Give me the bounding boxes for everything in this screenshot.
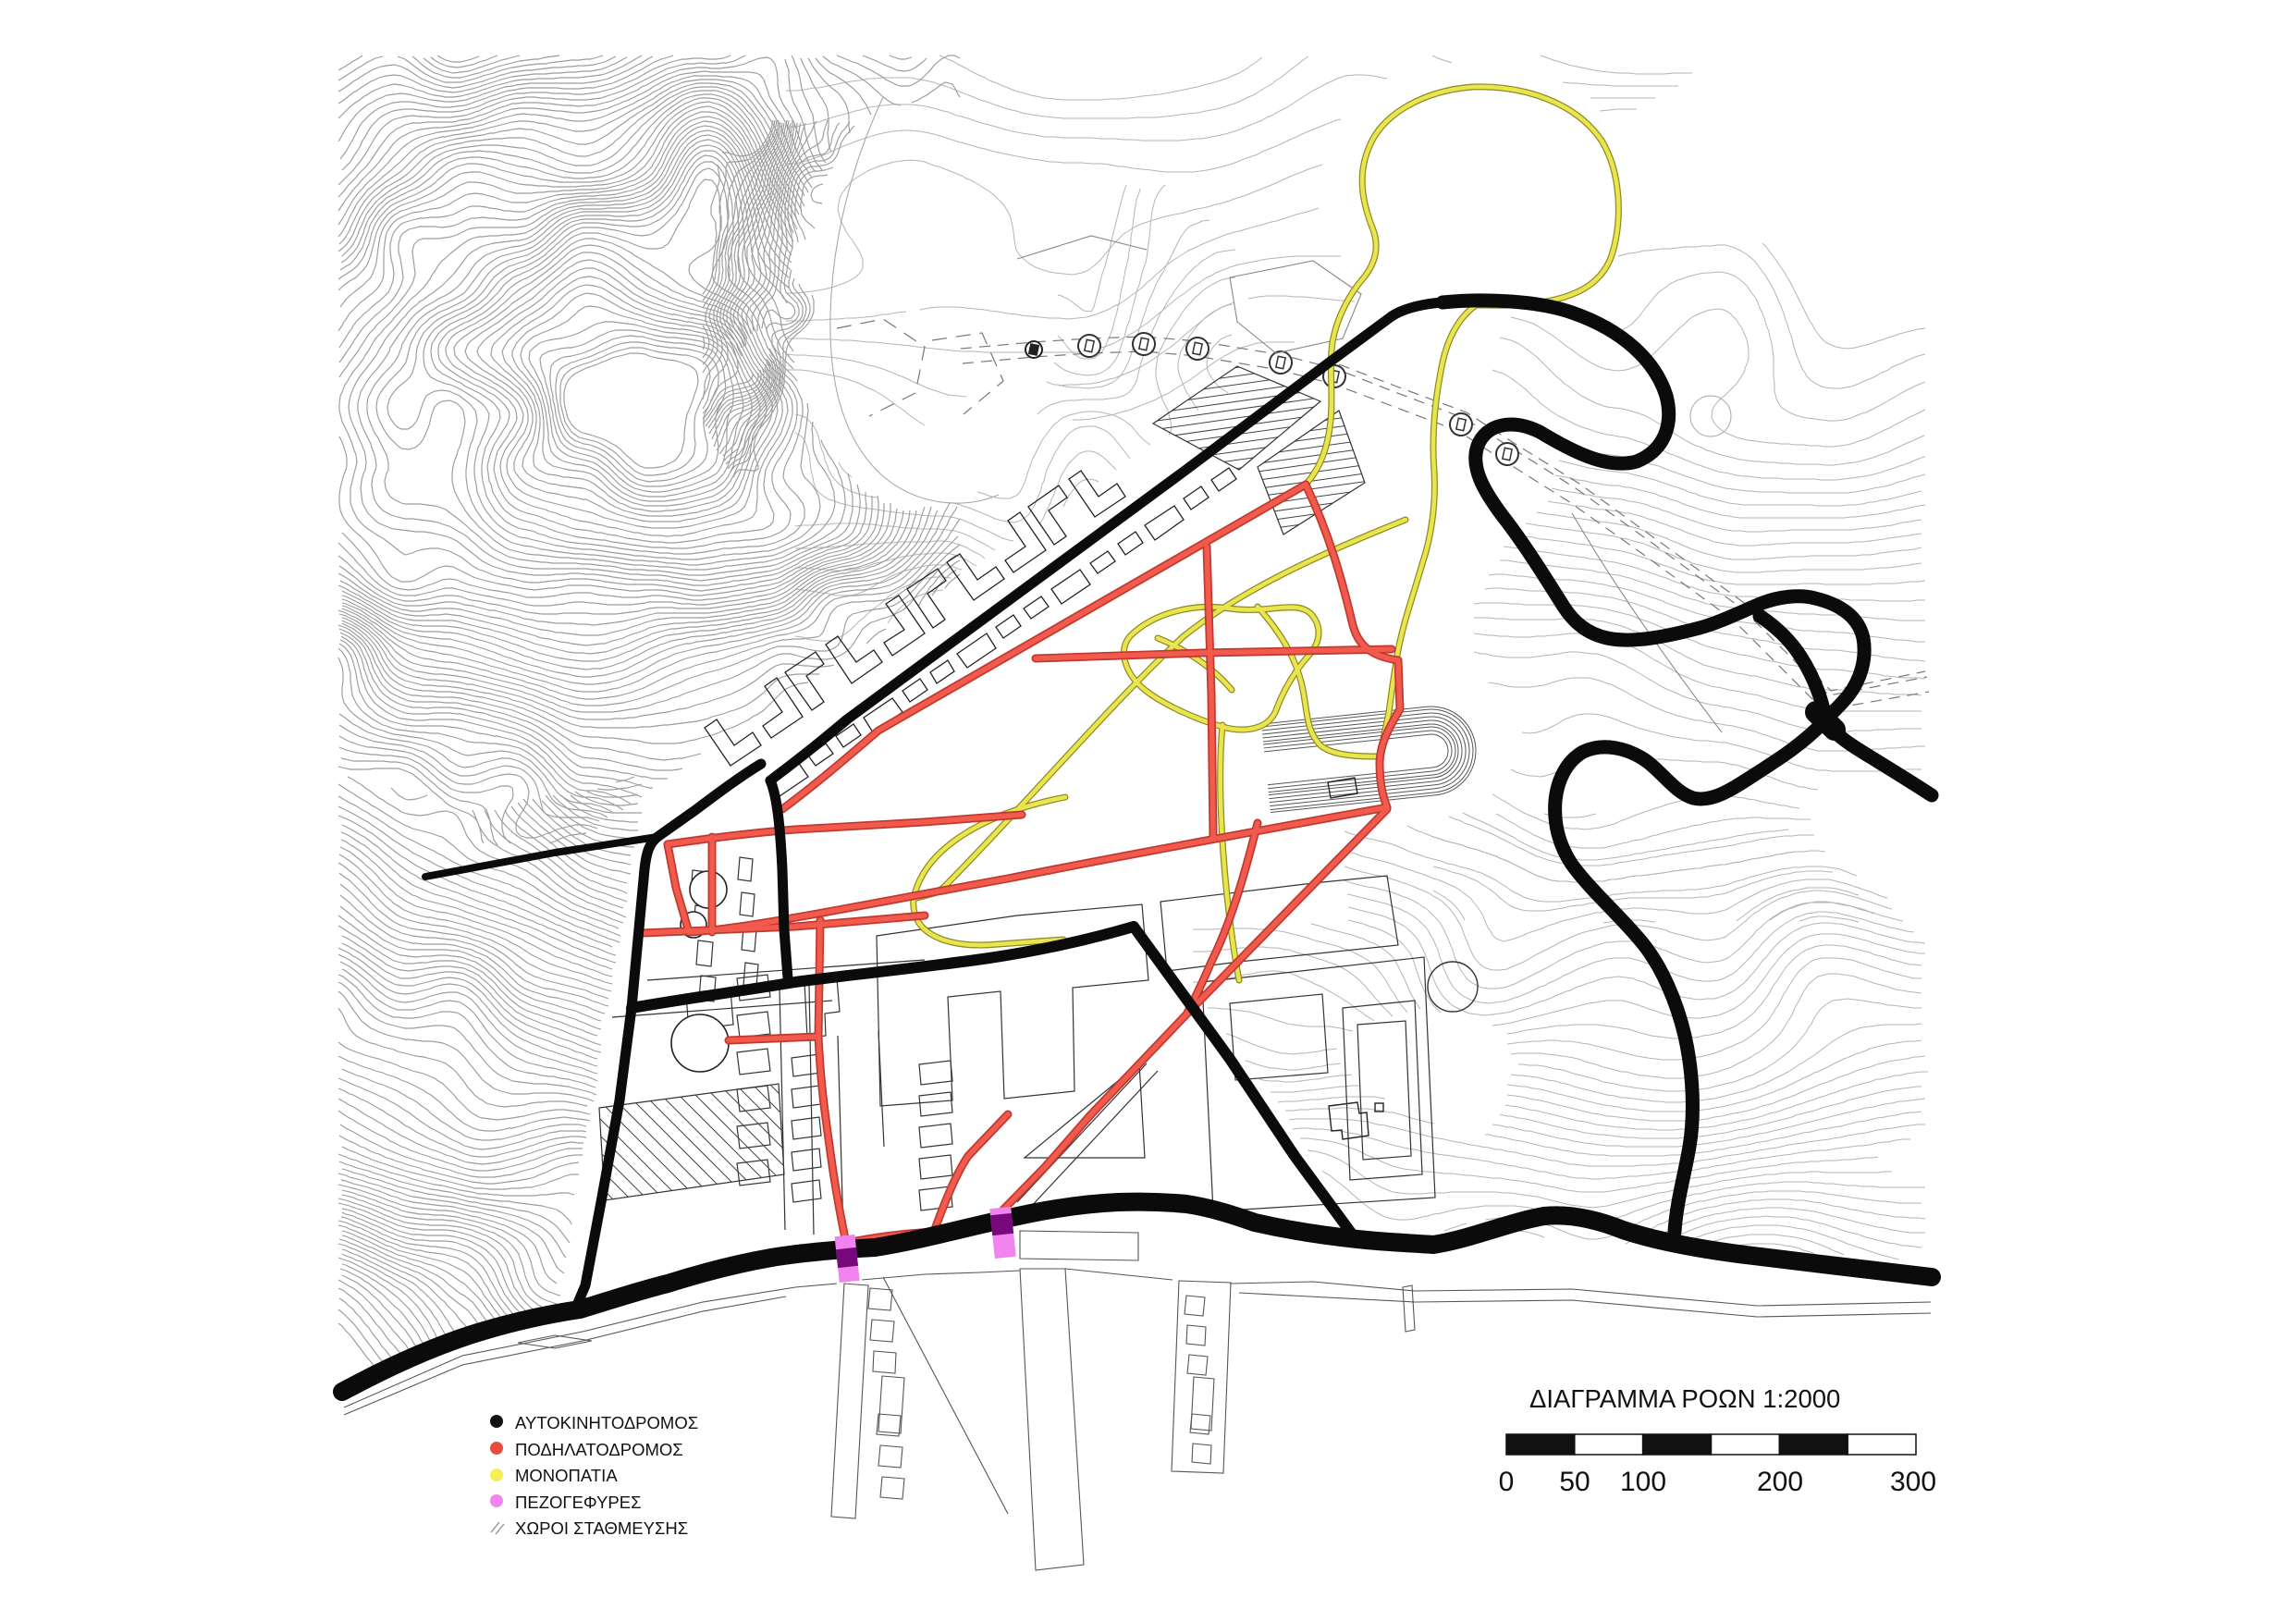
svg-text:200: 200 <box>1757 1467 1803 1497</box>
svg-text:100: 100 <box>1620 1467 1666 1497</box>
svg-text:ΠΟΔΗΛΑΤΟΔΡΟΜΟΣ: ΠΟΔΗΛΑΤΟΔΡΟΜΟΣ <box>515 1440 683 1459</box>
svg-text:ΧΩΡΟΙ ΣΤΑΘΜΕΥΣΗΣ: ΧΩΡΟΙ ΣΤΑΘΜΕΥΣΗΣ <box>515 1518 688 1538</box>
svg-text:300: 300 <box>1890 1467 1936 1497</box>
svg-text:ΠΕΖΟΓΕΦΥΡΕΣ: ΠΕΖΟΓΕΦΥΡΕΣ <box>515 1493 642 1512</box>
svg-text:ΔΙΑΓΡΑΜΜΑ ΡΟΩΝ 1:2000: ΔΙΑΓΡΑΜΜΑ ΡΟΩΝ 1:2000 <box>1529 1384 1840 1413</box>
svg-text:ΑΥΤΟΚΙΝΗΤΟΔΡΟΜΟΣ: ΑΥΤΟΚΙΝΗΤΟΔΡΟΜΟΣ <box>515 1413 698 1432</box>
svg-text:0: 0 <box>1499 1467 1515 1497</box>
svg-text:50: 50 <box>1559 1467 1590 1497</box>
svg-text:ΜΟΝΟΠΑΤΙΑ: ΜΟΝΟΠΑΤΙΑ <box>515 1466 618 1485</box>
